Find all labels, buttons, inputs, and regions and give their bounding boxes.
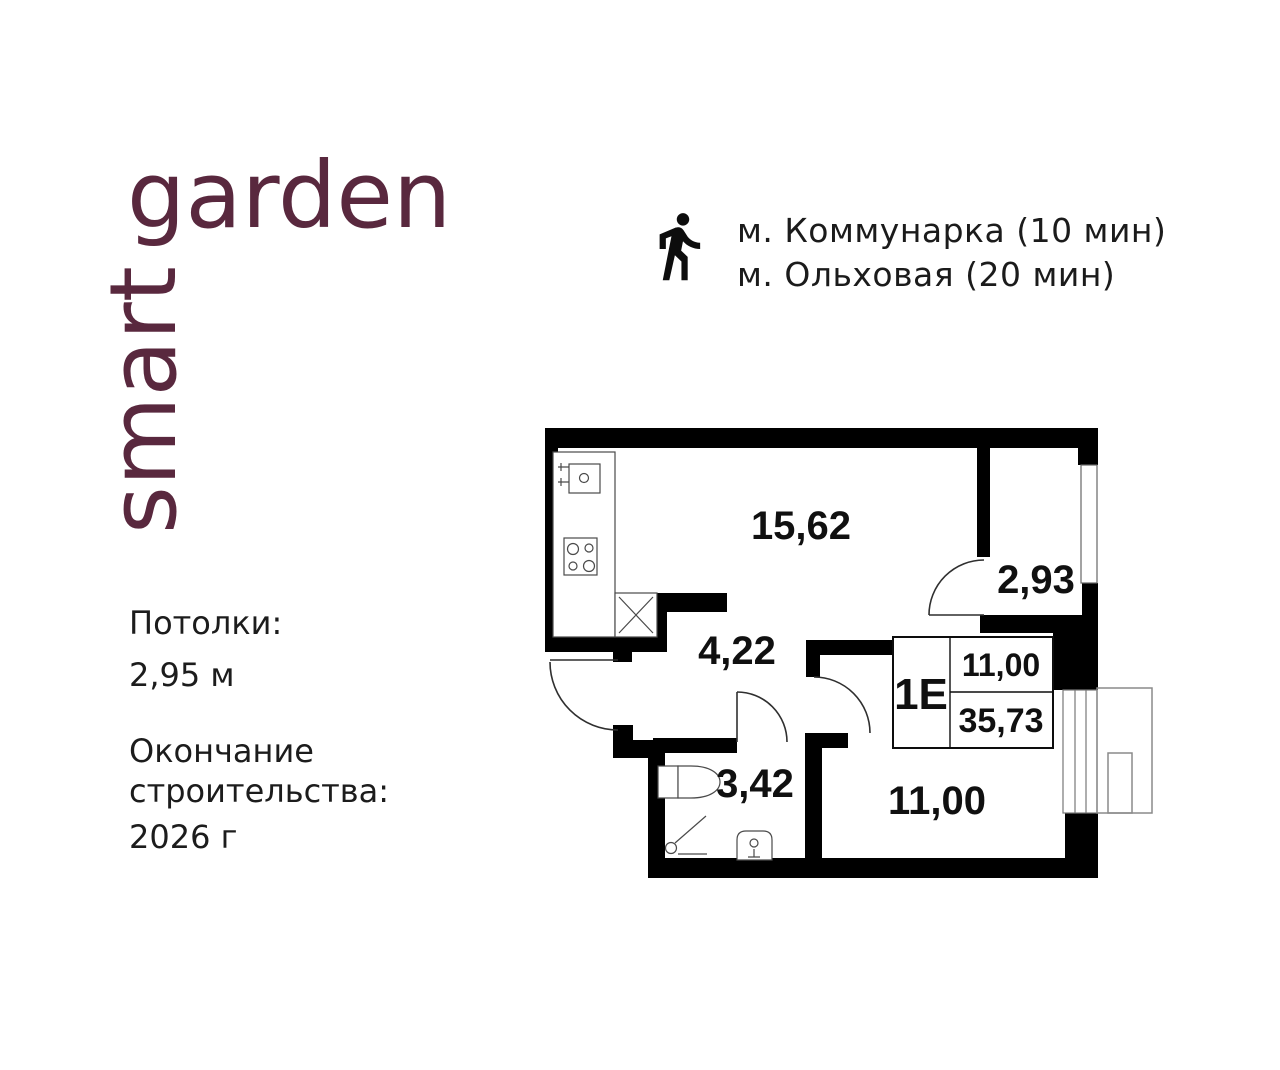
floor-plan: 15,62 2,93 4,22 3,42 11,00 1Е 11,00 35,7… (540, 420, 1170, 885)
ceiling-value: 2,95 м (129, 656, 235, 694)
completion-label-line1: Окончание (129, 732, 314, 770)
room-area-bathroom: 3,42 (716, 762, 794, 806)
apartment-card: { "brand": { "vertical_word": "smart", "… (0, 0, 1280, 1070)
badge-total-area: 35,73 (958, 702, 1043, 740)
washbasin-icon (737, 831, 772, 860)
completion-label-line2: строительства: (129, 772, 389, 810)
badge-room-area: 11,00 (962, 647, 1040, 683)
balcony (1097, 688, 1152, 813)
stove-icon (564, 538, 597, 575)
toilet-icon (658, 766, 720, 798)
ceiling-label: Потолки: (129, 604, 282, 642)
badge-layout-type: 1Е (894, 670, 948, 719)
walking-person-icon (659, 212, 707, 282)
bathroom-door-arc (737, 692, 787, 742)
metro-line-1: м. Коммунарка (10 мин) (737, 212, 1166, 250)
room-area-living: 15,62 (751, 504, 851, 548)
room-area-wardrobe: 2,93 (997, 558, 1075, 602)
completion-value: 2026 г (129, 818, 237, 856)
room-area-hallway: 4,22 (698, 629, 776, 673)
wardrobe-door-arc (929, 560, 984, 615)
metro-line-2: м. Ольховая (20 мин) (737, 256, 1115, 294)
room-area-bedroom: 11,00 (888, 779, 986, 823)
shower-drain-icon (666, 816, 708, 854)
entrance-door-arc (550, 660, 618, 730)
logo-word-smart: smart (98, 266, 190, 534)
logo-word-garden: garden (127, 150, 451, 242)
bedroom-door-arc (814, 677, 870, 733)
window (1081, 465, 1097, 583)
balcony-glazing (1063, 690, 1097, 813)
apartment-badge: 1Е 11,00 35,73 (893, 637, 1053, 748)
